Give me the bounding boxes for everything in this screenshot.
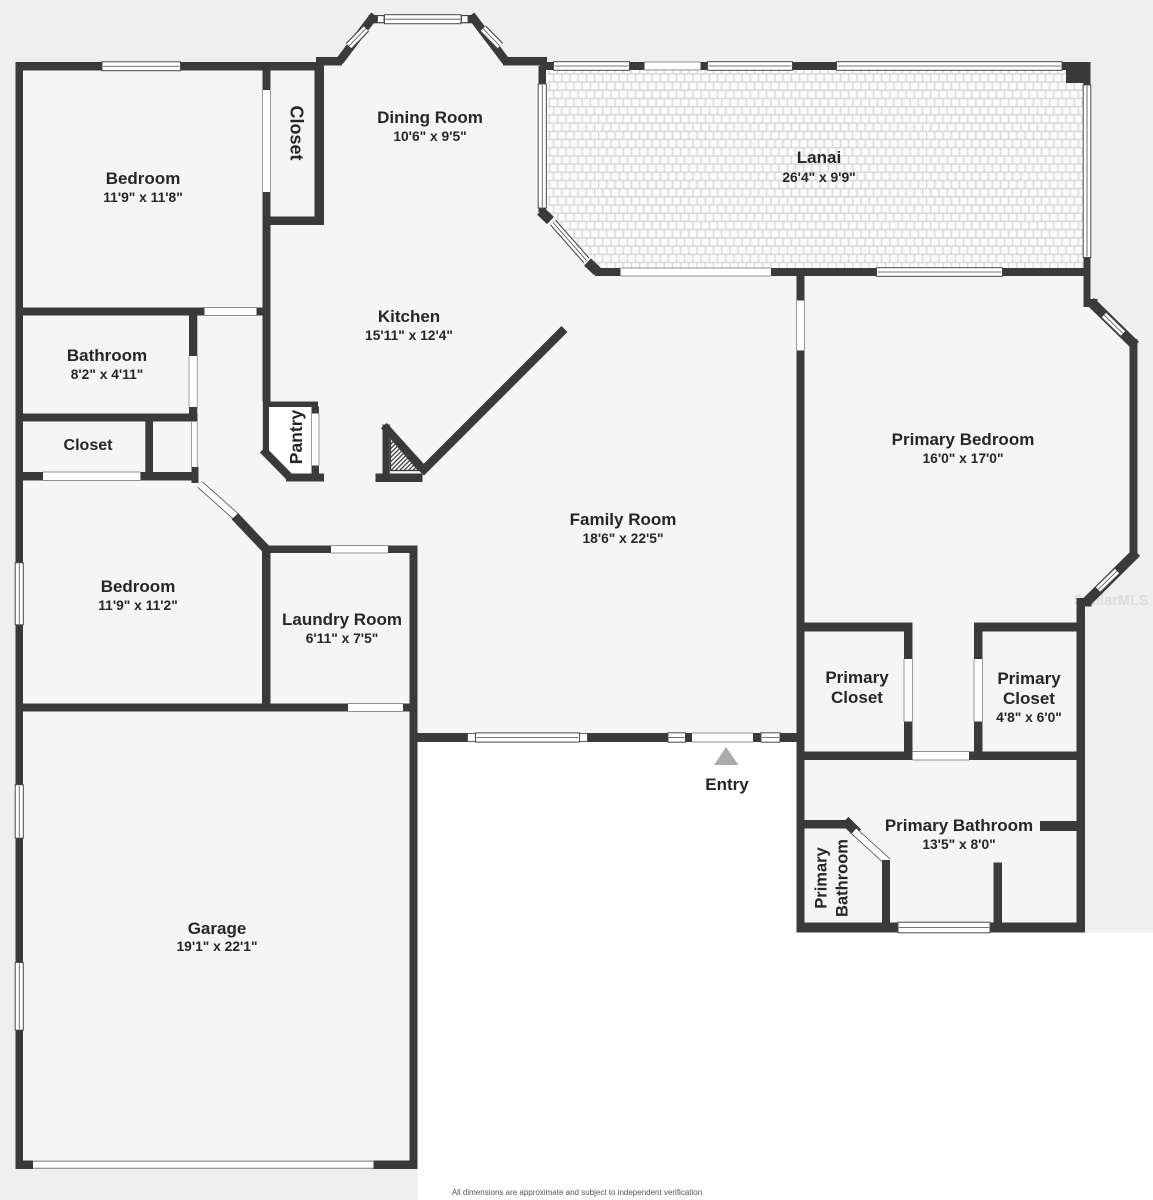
svg-text:13'5" x 8'0": 13'5" x 8'0" — [922, 837, 995, 852]
svg-text:6'11" x 7'5": 6'11" x 7'5" — [306, 631, 379, 646]
svg-text:Bathroom: Bathroom — [67, 346, 147, 365]
svg-text:15'11" x 12'4": 15'11" x 12'4" — [365, 328, 453, 343]
svg-text:All dimensions are approximate: All dimensions are approximate and subje… — [452, 1188, 702, 1197]
svg-text:Dining Room: Dining Room — [377, 108, 483, 127]
svg-text:Primary Bathroom: Primary Bathroom — [885, 816, 1033, 835]
svg-text:Bedroom: Bedroom — [106, 169, 181, 188]
svg-text:Closet: Closet — [64, 437, 114, 454]
svg-text:Primary Bedroom: Primary Bedroom — [892, 430, 1035, 449]
svg-text:Laundry Room: Laundry Room — [282, 610, 402, 629]
svg-text:11'9" x 11'8": 11'9" x 11'8" — [103, 190, 183, 205]
svg-text:4'8" x 6'0": 4'8" x 6'0" — [996, 710, 1062, 725]
svg-text:16'0" x 17'0": 16'0" x 17'0" — [922, 451, 1003, 466]
svg-text:26'4" x 9'9": 26'4" x 9'9" — [782, 170, 855, 185]
svg-text:Primary: Primary — [813, 846, 831, 908]
svg-text:Family Room: Family Room — [570, 510, 677, 529]
svg-text:Closet: Closet — [1003, 689, 1055, 708]
svg-text:Lanai: Lanai — [797, 148, 841, 167]
svg-text:Bedroom: Bedroom — [101, 577, 176, 596]
svg-text:Pantry: Pantry — [286, 410, 306, 465]
svg-text:19'1" x 22'1": 19'1" x 22'1" — [176, 939, 257, 954]
svg-text:18'6" x 22'5": 18'6" x 22'5" — [582, 531, 663, 546]
svg-text:Entry: Entry — [705, 775, 749, 794]
svg-text:8'2" x 4'11": 8'2" x 4'11" — [71, 367, 144, 382]
svg-text:10'6" x 9'5": 10'6" x 9'5" — [393, 129, 466, 144]
svg-text:Closet: Closet — [831, 688, 883, 707]
svg-text:Garage: Garage — [188, 919, 247, 938]
svg-text:Primary: Primary — [825, 668, 889, 687]
svg-text:Kitchen: Kitchen — [378, 307, 440, 326]
svg-text:Closet: Closet — [287, 105, 307, 160]
svg-text:Primary: Primary — [997, 669, 1061, 688]
svg-text:11'9" x 11'2": 11'9" x 11'2" — [98, 598, 178, 613]
svg-text:Bathroom: Bathroom — [834, 839, 852, 917]
